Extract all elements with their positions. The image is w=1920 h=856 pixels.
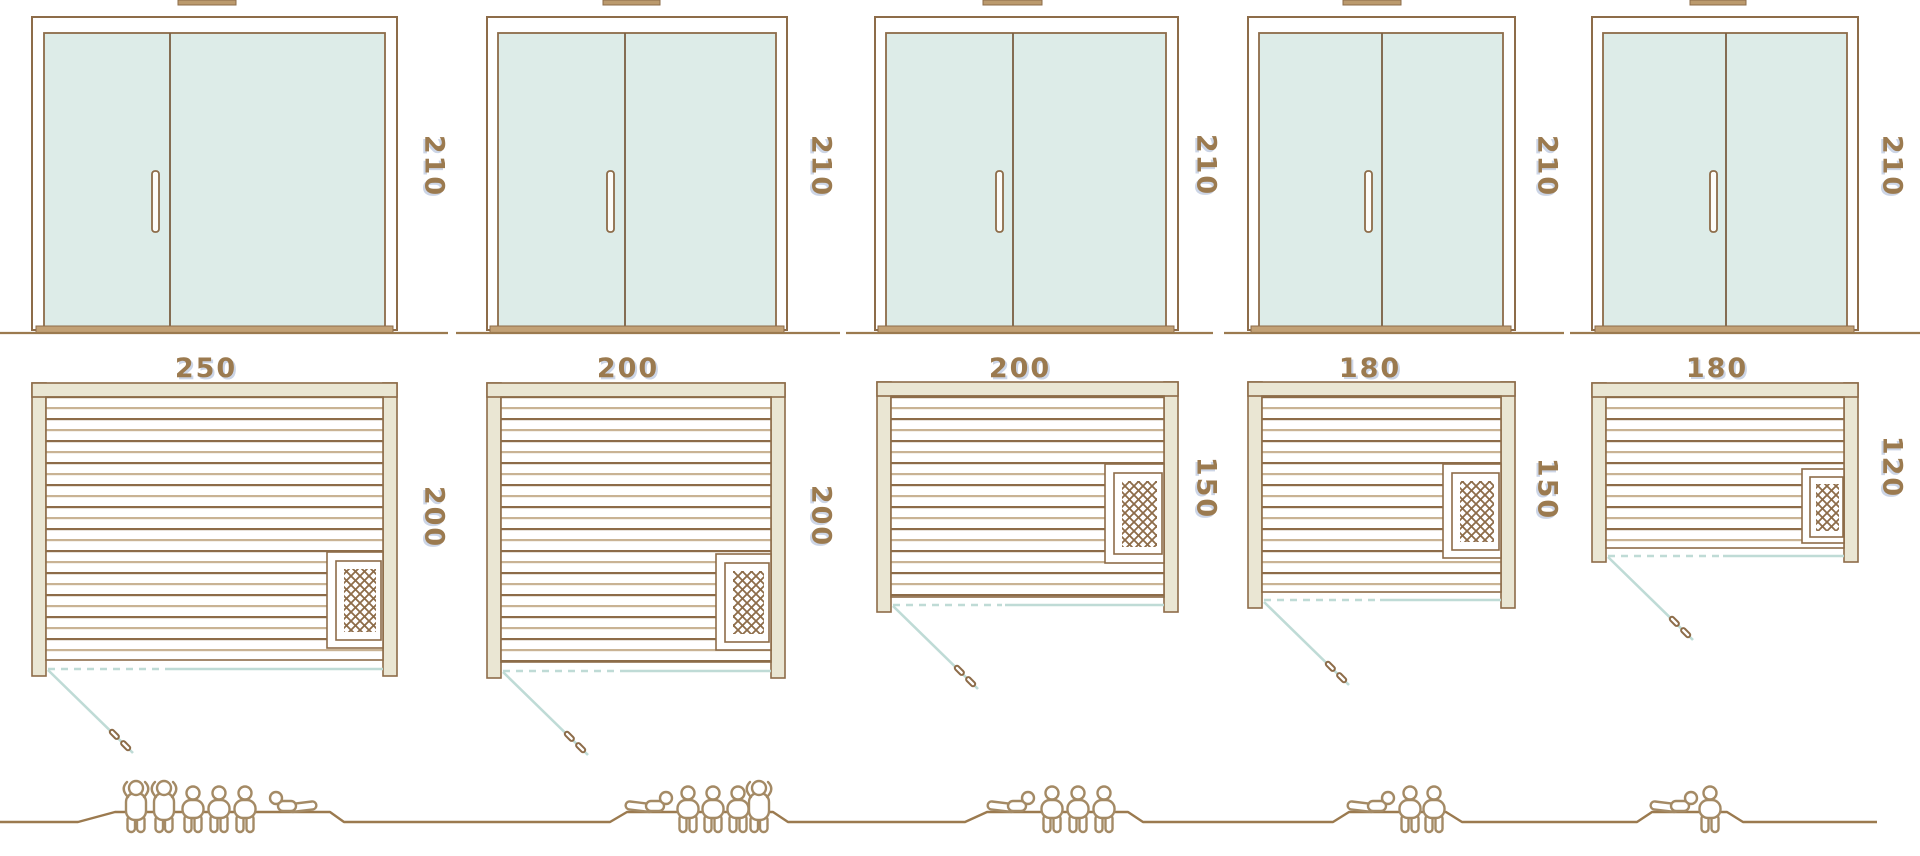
plan-wall-right — [1164, 382, 1178, 612]
person-sitting-icon — [1042, 787, 1063, 833]
floor-plan-4: 150 — [1248, 382, 1563, 685]
capacity-group-5 — [1650, 787, 1720, 833]
heater-grate — [344, 569, 376, 632]
width-label: 180 — [1686, 353, 1748, 384]
person-sitting-icon — [1094, 787, 1115, 833]
glass-panels — [498, 33, 776, 330]
heater-grate — [1816, 484, 1839, 531]
plan-wall-right — [383, 383, 397, 676]
door-swing-line — [1264, 602, 1349, 685]
width-label: 250 — [175, 353, 237, 384]
person-lying-icon — [270, 792, 317, 812]
person-lying-icon — [1347, 792, 1394, 812]
person-sitting-icon — [209, 787, 230, 833]
plan-wall-left — [877, 382, 891, 612]
glass-panels — [886, 33, 1166, 330]
sauna-unit-5: 180 210 120 — [1570, 0, 1920, 640]
plan-wall-left — [487, 383, 501, 678]
plan-wall-right — [1844, 383, 1858, 562]
capacity-ground-line — [0, 812, 1877, 822]
depth-label: 200 — [419, 486, 450, 548]
plan-wall-left — [32, 383, 46, 676]
person-sitting-icon — [728, 787, 749, 833]
height-label: 210 — [1877, 135, 1908, 197]
width-label: 200 — [597, 353, 659, 384]
depth-label: 200 — [806, 485, 837, 547]
height-label: 210 — [419, 135, 450, 197]
heater-grate — [1122, 481, 1157, 547]
person-standing-icon — [124, 781, 149, 832]
plan-wall-top — [32, 383, 397, 397]
width-label: 200 — [989, 353, 1051, 384]
plan-wall-right — [771, 383, 785, 678]
door-handle — [1365, 171, 1372, 232]
roof-cap — [1690, 0, 1746, 5]
door-elevation-2: 200 210 — [456, 0, 840, 384]
floor-plan-3: 150 — [877, 382, 1222, 689]
door-handle — [152, 171, 159, 232]
glass-panels — [1603, 33, 1847, 330]
roof-cap — [1343, 0, 1401, 5]
person-sitting-icon — [703, 787, 724, 833]
glass-panels — [1259, 33, 1503, 330]
roof-cap — [983, 0, 1042, 5]
roof-cap — [603, 0, 660, 5]
depth-label: 120 — [1877, 436, 1908, 498]
sauna-unit-4: 180 210 150 — [1224, 0, 1564, 685]
door-swing-line — [503, 672, 588, 755]
floor-plan-1: 200 — [32, 383, 450, 753]
door-elevation-4: 180 210 — [1224, 0, 1564, 384]
heater-grate — [1460, 481, 1494, 542]
height-label: 210 — [806, 135, 837, 197]
plan-wall-left — [1248, 382, 1262, 608]
height-label: 210 — [1532, 135, 1563, 197]
person-lying-icon — [625, 792, 672, 812]
door-swing-line — [893, 606, 978, 689]
depth-label: 150 — [1532, 458, 1563, 520]
capacity-group-3 — [987, 787, 1114, 833]
door-handle — [996, 171, 1003, 232]
floor-plan-5: 120 — [1592, 383, 1908, 640]
person-sitting-icon — [1424, 787, 1445, 833]
plan-wall-left — [1592, 383, 1606, 562]
person-sitting-icon — [1700, 787, 1721, 833]
heater — [1802, 469, 1844, 543]
roof-cap — [178, 0, 236, 5]
sauna-unit-2: 200 210 200 — [456, 0, 840, 755]
door-elevation-1: 250 210 — [0, 0, 450, 384]
heater — [327, 552, 383, 648]
depth-label: 150 — [1191, 457, 1222, 519]
door-elevation-5: 180 210 — [1570, 0, 1920, 384]
sauna-sizes-diagram: 250 210 200 — [0, 0, 1920, 856]
plan-wall-right — [1501, 382, 1515, 608]
person-standing-icon — [152, 781, 177, 832]
person-lying-icon — [987, 792, 1034, 812]
plan-wall-top — [1248, 382, 1515, 396]
sauna-unit-1: 250 210 200 — [0, 0, 450, 753]
plan-wall-top — [1592, 383, 1858, 397]
plan-wall-top — [877, 382, 1178, 396]
door-swing-line — [1608, 557, 1693, 640]
sauna-unit-3: 200 210 150 — [846, 0, 1222, 689]
person-sitting-icon — [678, 787, 699, 833]
height-label: 210 — [1191, 134, 1222, 196]
person-lying-icon — [1650, 792, 1697, 812]
plan-wall-top — [487, 383, 785, 397]
person-sitting-icon — [1400, 787, 1421, 833]
diagram-svg: 250 210 200 — [0, 0, 1920, 856]
door-elevation-3: 200 210 — [846, 0, 1222, 384]
capacity-group-2 — [625, 781, 771, 832]
width-label: 180 — [1339, 353, 1401, 384]
capacity-group-1 — [124, 781, 317, 832]
heater — [1443, 464, 1501, 558]
door-handle — [607, 171, 614, 232]
heater — [1105, 464, 1164, 563]
door-handle — [1710, 171, 1717, 232]
person-sitting-icon — [183, 787, 204, 833]
glass-panels — [44, 33, 385, 330]
floor-plan-2: 200 — [487, 383, 837, 755]
person-sitting-icon — [1068, 787, 1089, 833]
heater-grate — [733, 571, 764, 634]
person-standing-icon — [747, 781, 772, 832]
capacity-group-4 — [1347, 787, 1444, 833]
heater — [716, 554, 771, 650]
door-swing-line — [48, 670, 133, 753]
person-sitting-icon — [235, 787, 256, 833]
